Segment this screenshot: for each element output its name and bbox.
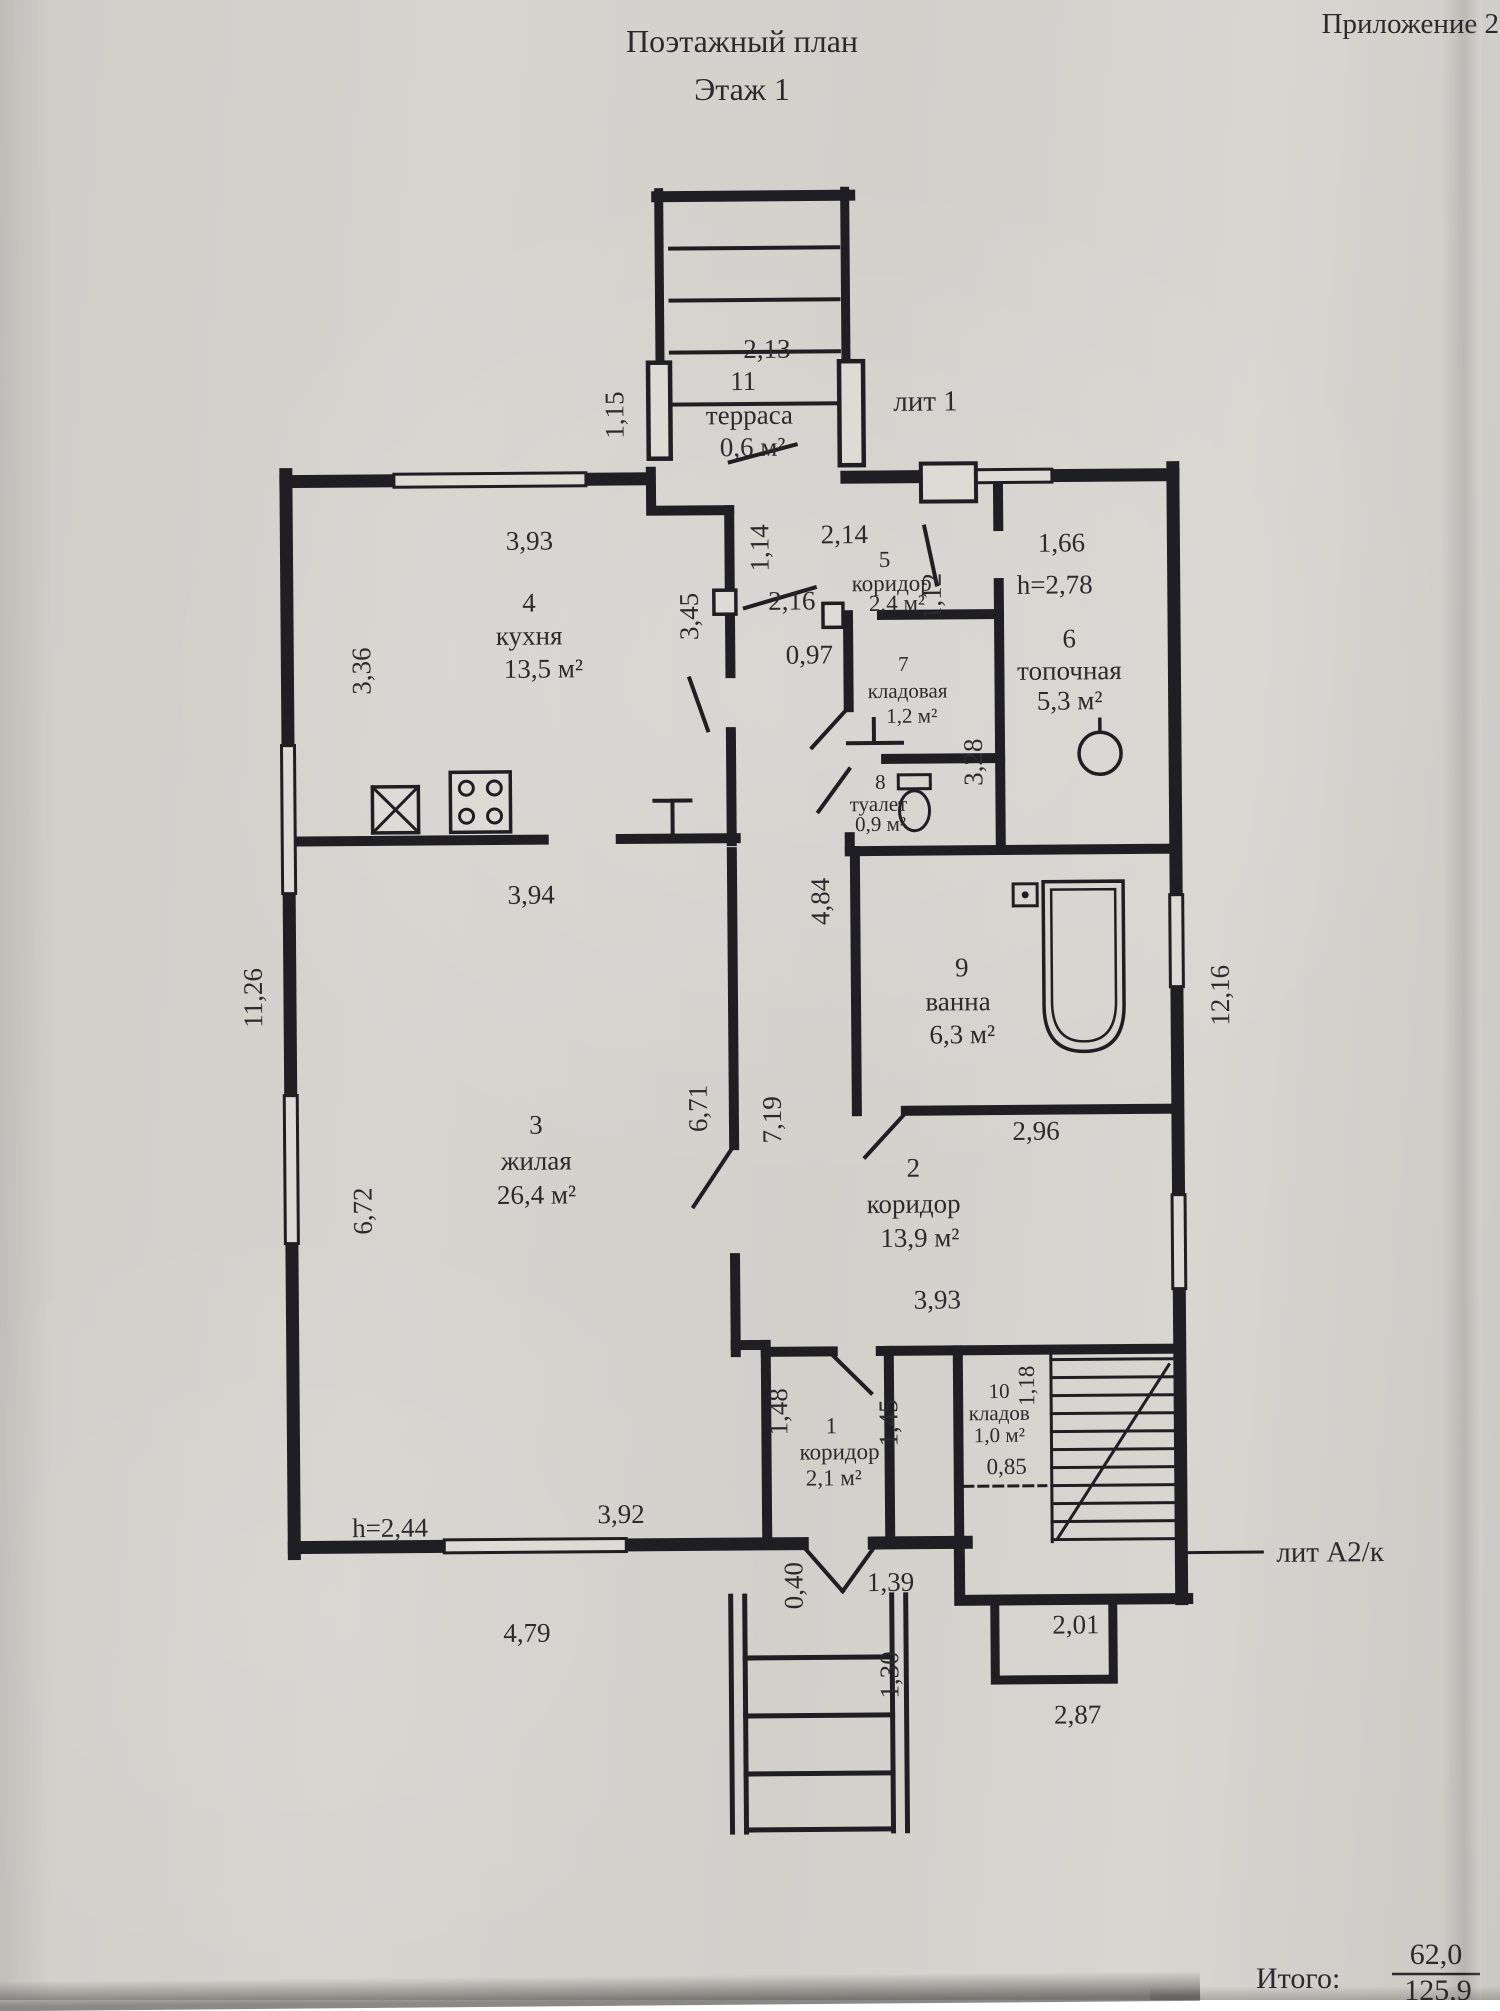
dim-719: 7,19 <box>757 1096 787 1143</box>
wall-bath-left <box>855 851 857 1111</box>
room-2-area: 13,9 м² <box>880 1222 959 1253</box>
room-7-number: 7 <box>898 652 909 676</box>
room-1-area: 2,1 м² <box>806 1465 862 1490</box>
room-corridor2-label: 2 коридор 13,9 м² <box>866 1152 961 1253</box>
kitchen-table-icon <box>654 800 690 838</box>
dim-394: 3,94 <box>507 880 555 910</box>
room-6-area: 5,3 м² <box>1037 685 1103 716</box>
room-5-number: 5 <box>879 547 891 572</box>
wall-outer-left <box>286 475 294 1554</box>
dim-392: 3,92 <box>597 1499 644 1529</box>
window-right-1 <box>1170 895 1184 987</box>
door-leaf-097 <box>689 678 707 730</box>
room-1-number: 1 <box>825 1413 837 1438</box>
dim-213: 2,13 <box>743 334 790 364</box>
wall-corridor2-bottom <box>766 1349 1180 1352</box>
dim-040: 0,40 <box>778 1562 808 1609</box>
dim-139: 1,39 <box>867 1567 914 1597</box>
boiler-icon <box>1079 719 1121 774</box>
dim-h244: h=2,44 <box>352 1513 429 1544</box>
dim-296: 2,96 <box>1012 1116 1059 1146</box>
room-3-name: жилая <box>500 1145 572 1176</box>
room-1-name: коридор <box>799 1439 879 1465</box>
room-3-number: 3 <box>529 1110 543 1140</box>
dim-287: 2,87 <box>1054 1699 1101 1729</box>
door-leaf-bath <box>865 1115 904 1157</box>
dim-479: 4,79 <box>503 1618 550 1648</box>
dim-393-kitchen: 3,93 <box>506 526 553 556</box>
dim-112: 1,12 <box>917 573 947 620</box>
wall-storeroom10-left <box>958 1350 960 1542</box>
dim-393-corridor: 3,93 <box>914 1284 961 1314</box>
lit-1-label: лит 1 <box>893 385 958 418</box>
dim-484: 4,84 <box>805 877 835 925</box>
room-9-area: 6,3 м² <box>929 1019 995 1050</box>
stove-icon <box>450 772 510 832</box>
paper-crease-right <box>1442 0 1482 2000</box>
wall-bath-bottom <box>906 1109 1178 1111</box>
room-6-number: 6 <box>1062 623 1076 653</box>
wall-kitchen-jog <box>651 471 729 511</box>
wall-bath-top <box>850 849 1176 852</box>
dim-214: 2,14 <box>821 519 869 549</box>
dim-216: 2,16 <box>768 585 815 615</box>
window-left-2 <box>284 1096 298 1244</box>
terrace-column-left <box>648 363 671 459</box>
dim-1216: 12,16 <box>1205 965 1235 1026</box>
dim-h278: h=2,78 <box>1017 569 1093 600</box>
dim-1126: 11,26 <box>238 968 268 1028</box>
stairs-interior-slope <box>1057 1365 1170 1538</box>
wall-kitchen-living-divider <box>289 838 736 842</box>
room-2-number: 2 <box>906 1153 920 1183</box>
ladder-exterior-rungs <box>745 1657 893 1830</box>
dim-336: 3,36 <box>346 647 376 694</box>
lit-a2-leader-line <box>1188 1552 1262 1553</box>
dim-097: 0,97 <box>786 639 833 669</box>
jamb-pantry-door <box>823 603 843 627</box>
dim-672: 6,72 <box>347 1187 377 1234</box>
jamb-kitchen-door <box>714 590 736 614</box>
dim-114: 1,14 <box>744 524 774 572</box>
dim-328: 3,28 <box>958 738 988 785</box>
window-right-2 <box>1172 1195 1186 1289</box>
wall-outer-bottom <box>294 1542 966 1547</box>
wall-a-kitchen-living <box>729 510 736 1352</box>
dim-130: 1,30 <box>874 1651 904 1698</box>
door-leaf-pantry <box>812 707 849 747</box>
pillar-entry <box>921 463 976 501</box>
room-corridor1-label: 1 коридор 2,1 м² <box>799 1413 880 1491</box>
dim-166: 1,66 <box>1038 527 1085 557</box>
bathtub-icon <box>1013 881 1124 1052</box>
dim-148: 1,48 <box>763 1388 793 1435</box>
sink-icon <box>372 787 418 833</box>
dim-201: 2,01 <box>1052 1609 1099 1639</box>
room-8-number: 8 <box>875 770 886 794</box>
wall-boilerroom-left <box>998 476 1001 843</box>
room-7-name: кладовая <box>868 678 948 703</box>
room-9-name: ванна <box>925 986 991 1017</box>
room-11-area: 0,6 м² <box>720 432 786 463</box>
paper-shadow-bottom-right <box>1150 1986 1500 2000</box>
door-leaf-toilet <box>818 769 849 811</box>
room-4-name: кухня <box>496 620 563 651</box>
room-kitchen-label: 4 кухня 13,5 м² <box>495 587 583 684</box>
room-10-number: 10 <box>988 1379 1009 1403</box>
dim-115: 1,15 <box>599 391 629 438</box>
window-bottom <box>444 1538 626 1552</box>
room-pantry-label: 7 кладовая 1,2 м² <box>867 651 948 728</box>
door-leaf-living <box>693 1148 732 1206</box>
room-2-name: коридор <box>867 1188 961 1219</box>
dim-345: 3,45 <box>674 593 704 640</box>
wall-terrace-top <box>657 195 850 197</box>
wall-corridor1-left <box>736 1345 768 1544</box>
floorplan-svg: Поэтажный план Этаж 1 Приложение 2 <box>0 0 1500 2000</box>
plan-drawing: 11 терраса 0,6 м² 4 кухня 13,5 м² 5 кори… <box>232 187 1387 1836</box>
window-left-1 <box>281 746 295 894</box>
window-top-right <box>976 469 1052 483</box>
room-6-name: топочная <box>1017 655 1122 686</box>
room-7-area: 1,2 м² <box>886 704 937 728</box>
dim-671: 6,71 <box>683 1085 713 1132</box>
wall-outer-right <box>1173 468 1182 1599</box>
room-8-area: 0,9 м² <box>855 812 906 836</box>
room-4-number: 4 <box>522 588 536 618</box>
room-10-area: 1,0 м² <box>974 1423 1025 1447</box>
room-terrace-label: 11 терраса 0,6 м² <box>705 366 793 463</box>
room-11-number: 11 <box>730 366 756 396</box>
room-boilerroom-label: 6 топочная 5,3 м² <box>1017 623 1122 716</box>
room-bath-label: 9 ванна 6,3 м² <box>925 952 995 1050</box>
lit-a2-label: лит А2/к <box>1276 1536 1385 1569</box>
window-kitchen-top <box>394 473 586 488</box>
room-living-label: 3 жилая 26,4 м² <box>496 1109 576 1210</box>
page-subtitle: Этаж 1 <box>694 71 790 107</box>
page-title: Поэтажный план <box>626 23 858 59</box>
terrace-column-right <box>839 361 864 465</box>
storeroom10-dashed-line <box>964 1486 1046 1487</box>
room-11-name: терраса <box>706 400 793 431</box>
room-3-area: 26,4 м² <box>497 1179 576 1210</box>
dim-085: 0,85 <box>986 1454 1026 1479</box>
room-9-number: 9 <box>955 952 969 982</box>
door-leaf-corridor1 <box>833 1355 871 1393</box>
dim-118: 1,18 <box>1014 1366 1039 1406</box>
room-4-area: 13,5 м² <box>504 653 583 684</box>
dim-145: 1,45 <box>873 1399 903 1446</box>
paper-crease-left <box>0 0 60 2000</box>
wall-stairblock-bottom <box>959 1547 1187 1601</box>
door-leaf-exit <box>804 1547 874 1592</box>
scanned-floorplan-page: Поэтажный план Этаж 1 Приложение 2 <box>0 0 1500 2000</box>
